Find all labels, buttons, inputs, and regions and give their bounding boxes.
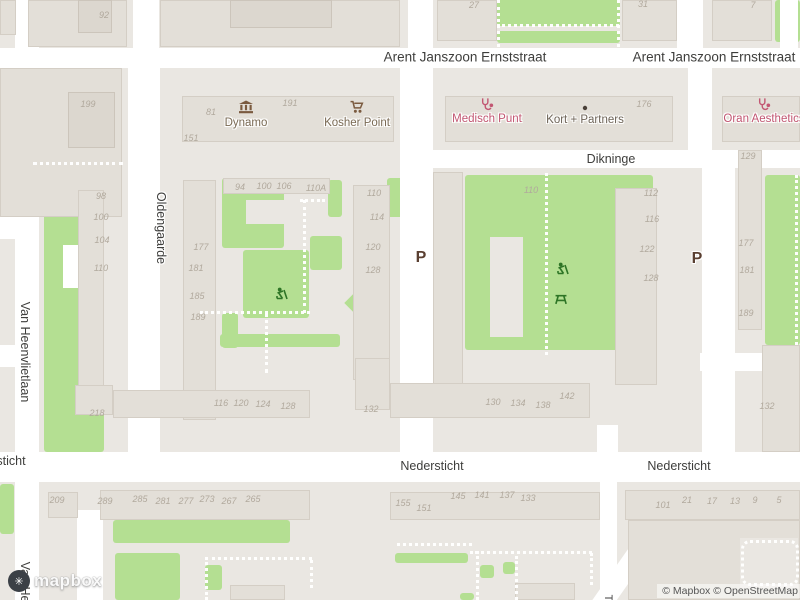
street-label: Nedersticht (400, 459, 463, 473)
path-dotted (515, 556, 518, 600)
park-area (113, 520, 290, 543)
house-number: 128 (280, 401, 295, 411)
house-number: 265 (245, 494, 260, 504)
house-number: 101 (655, 500, 670, 510)
path-dotted (205, 557, 312, 560)
map-canvas[interactable]: ✳ mapbox © Mapbox © OpenStreetMap Arent … (0, 0, 800, 600)
house-number: 267 (221, 496, 236, 506)
path-dotted (617, 0, 620, 47)
house-number: 110 (524, 185, 538, 195)
house-number: 277 (178, 496, 193, 506)
path-dotted (590, 553, 593, 585)
park-area (503, 562, 515, 574)
path-dotted (200, 311, 310, 314)
house-number: 110 (94, 263, 108, 273)
building (355, 358, 390, 410)
museum-icon (239, 101, 253, 114)
house-number: 129 (740, 151, 755, 161)
house-number: 17 (707, 496, 717, 506)
picnic-table-icon (554, 293, 569, 305)
house-number: 132 (363, 404, 378, 414)
street-label: T (602, 595, 614, 600)
road (688, 68, 712, 152)
house-number: 141 (474, 490, 489, 500)
building (0, 0, 16, 35)
house-number: 100 (256, 181, 271, 191)
house-number: 130 (485, 397, 500, 407)
road (677, 0, 703, 48)
dot-icon (583, 106, 588, 111)
park-area (328, 180, 342, 217)
building (437, 0, 497, 41)
path-dotted (476, 551, 479, 600)
house-number: 106 (276, 181, 291, 191)
house-number: 112 (644, 188, 658, 198)
house-number: 122 (639, 244, 654, 254)
house-number: 189 (738, 308, 753, 318)
park-area (0, 484, 14, 534)
path-dotted (795, 175, 798, 345)
path-dotted (265, 313, 268, 373)
path-dotted (310, 560, 313, 588)
land (490, 237, 523, 337)
path-dotted (397, 543, 472, 546)
path-dotted (303, 200, 306, 313)
building (622, 0, 677, 41)
house-number: 177 (738, 238, 753, 248)
park-area (220, 334, 340, 347)
house-number: 218 (89, 408, 104, 418)
road (63, 245, 78, 288)
road (597, 425, 618, 452)
house-number: 273 (199, 494, 214, 504)
house-number: 181 (739, 265, 754, 275)
park-area (310, 236, 342, 270)
cart-icon (350, 101, 364, 114)
house-number: 21 (682, 495, 692, 505)
path-dotted (205, 557, 208, 600)
park-area (497, 0, 620, 26)
building (230, 0, 332, 28)
park-area (115, 553, 180, 600)
house-number: 120 (365, 242, 380, 252)
house-number: 124 (255, 399, 270, 409)
house-number: 181 (188, 263, 203, 273)
house-number: 176 (636, 99, 651, 109)
house-number: 281 (155, 496, 170, 506)
poi-label[interactable]: Kort + Partners (546, 114, 624, 126)
parking-icon: P (692, 250, 703, 268)
playground-icon (274, 287, 289, 302)
road (702, 150, 735, 452)
house-number: 114 (370, 212, 384, 222)
house-number: 128 (365, 265, 380, 275)
stethoscope-icon (481, 98, 494, 111)
stethoscope-icon (758, 98, 771, 111)
building (712, 0, 772, 41)
park-area (497, 31, 620, 43)
mapbox-logo-icon: ✳ (8, 570, 30, 592)
house-number: 120 (233, 398, 248, 408)
park-area (395, 553, 468, 563)
house-number: 110A (306, 183, 326, 193)
house-number: 151 (183, 133, 198, 143)
house-number: 13 (730, 496, 740, 506)
house-number: 94 (235, 182, 245, 192)
house-number: 116 (645, 214, 659, 224)
house-number: 151 (416, 503, 431, 513)
parking-icon: P (416, 249, 427, 267)
poi-label[interactable]: Medisch Punt (452, 113, 522, 125)
road (0, 217, 16, 239)
playground-icon (555, 262, 570, 277)
path-dotted (497, 0, 500, 47)
house-number: 155 (395, 498, 410, 508)
land (246, 200, 284, 224)
road (408, 0, 433, 48)
house-number: 134 (510, 398, 525, 408)
house-number: 5 (776, 495, 781, 505)
poi-label[interactable]: Oran Aesthetics (723, 113, 800, 125)
house-number: 189 (190, 312, 205, 322)
building (762, 345, 800, 452)
park-area (480, 565, 494, 578)
house-number: 128 (643, 273, 658, 283)
road (780, 0, 798, 48)
road (133, 0, 159, 48)
house-number: 98 (96, 191, 106, 201)
house-number: 191 (282, 98, 297, 108)
house-number: 142 (559, 391, 574, 401)
house-number: 138 (535, 400, 550, 410)
house-number: 27 (469, 0, 479, 10)
house-number: 7 (750, 0, 755, 10)
path-dotted (33, 162, 123, 165)
house-number: 110 (367, 188, 381, 198)
house-number: 177 (193, 242, 208, 252)
house-number: 209 (49, 495, 64, 505)
park-area (460, 593, 474, 600)
house-number: 145 (450, 491, 465, 501)
house-number: 31 (638, 0, 648, 9)
house-number: 285 (132, 494, 147, 504)
house-number: 9 (752, 495, 757, 505)
path-dotted (497, 24, 619, 27)
mapbox-wordmark: mapbox (34, 571, 102, 591)
path-dotted (741, 540, 799, 586)
house-number: 104 (94, 235, 109, 245)
house-number: 100 (93, 212, 108, 222)
street-label: Nedersticht (647, 459, 710, 473)
house-number: 289 (97, 496, 112, 506)
house-number: 137 (499, 490, 514, 500)
house-number: 199 (80, 99, 95, 109)
house-number: 81 (206, 107, 216, 117)
street-label: Van Heenvlietlaan (18, 302, 32, 403)
house-number: 116 (214, 398, 228, 408)
path-dotted (470, 551, 592, 554)
poi-label[interactable]: Dynamo (225, 117, 268, 129)
poi-label[interactable]: Kosher Point (324, 117, 390, 129)
street-label: Nedersticht (0, 454, 26, 468)
street-label: Dikninge (587, 152, 636, 166)
house-number: 185 (189, 291, 204, 301)
street-label: Oldengaarde (154, 192, 168, 264)
building (433, 172, 463, 388)
mapbox-logo[interactable]: ✳ mapbox (8, 570, 102, 592)
building (230, 585, 285, 600)
house-number: 132 (759, 401, 774, 411)
street-label: Arent Janszoon Ernststraat (384, 50, 547, 65)
building (515, 583, 575, 600)
street-label: Arent Janszoon Ernststraat (633, 50, 796, 65)
road (0, 345, 16, 367)
house-number: 92 (99, 10, 109, 20)
house-number: 133 (520, 493, 535, 503)
map-attribution[interactable]: © Mapbox © OpenStreetMap (657, 584, 800, 598)
attribution-text: © Mapbox © OpenStreetMap (662, 585, 798, 597)
park-area (243, 250, 309, 318)
path-dotted (545, 173, 548, 355)
